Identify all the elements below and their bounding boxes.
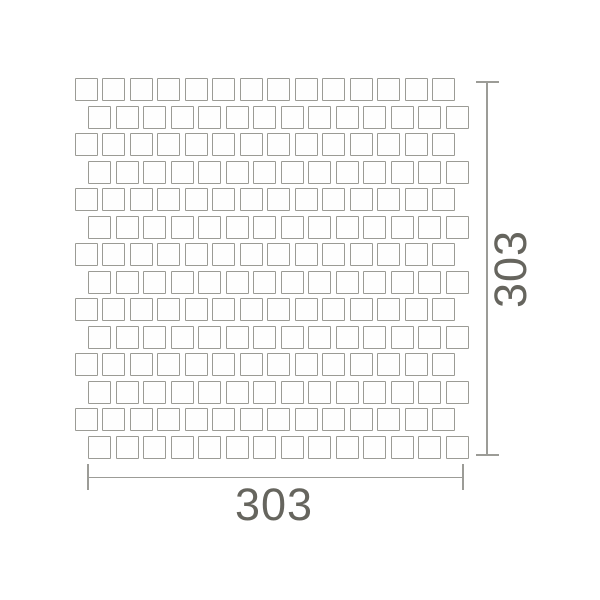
mosaic-tile	[198, 436, 221, 459]
mosaic-tile	[226, 326, 249, 349]
mosaic-tile	[102, 243, 125, 266]
mosaic-tile	[226, 271, 249, 294]
mosaic-tile	[226, 216, 249, 239]
mosaic-tile	[171, 216, 194, 239]
horizontal-dimension-left-tick	[87, 464, 89, 490]
mosaic-tile	[88, 436, 111, 459]
mosaic-tile	[295, 298, 318, 321]
mosaic-tile	[418, 326, 441, 349]
mosaic-tile	[75, 353, 98, 376]
drawing-canvas: 303 303	[0, 0, 600, 600]
mosaic-tile	[363, 436, 386, 459]
mosaic-tile	[350, 188, 373, 211]
mosaic-tile	[281, 381, 304, 404]
mosaic-tile	[267, 243, 290, 266]
mosaic-tile	[157, 188, 180, 211]
mosaic-tile	[212, 133, 235, 156]
mosaic-tile	[130, 298, 153, 321]
mosaic-tile	[377, 243, 400, 266]
mosaic-tile	[102, 78, 125, 101]
mosaic-tile	[253, 436, 276, 459]
mosaic-tile	[130, 133, 153, 156]
mosaic-tile	[116, 271, 139, 294]
mosaic-tile	[391, 161, 414, 184]
mosaic-tile	[391, 216, 414, 239]
mosaic-tile	[336, 161, 359, 184]
mosaic-tile	[212, 353, 235, 376]
mosaic-tile	[171, 326, 194, 349]
mosaic-tile	[185, 133, 208, 156]
mosaic-tile	[295, 78, 318, 101]
mosaic-tile	[116, 161, 139, 184]
mosaic-tile	[116, 381, 139, 404]
mosaic-tile	[350, 243, 373, 266]
mosaic-tile	[240, 353, 263, 376]
mosaic-tile	[295, 408, 318, 431]
mosaic-tile	[88, 326, 111, 349]
mosaic-tile	[295, 188, 318, 211]
mosaic-tile	[281, 216, 304, 239]
mosaic-tile	[171, 161, 194, 184]
mosaic-tile	[226, 161, 249, 184]
mosaic-tile	[198, 106, 221, 129]
mosaic-tile	[281, 326, 304, 349]
mosaic-tile	[405, 408, 428, 431]
mosaic-tile	[322, 353, 345, 376]
mosaic-tile	[226, 106, 249, 129]
mosaic-tile	[446, 161, 469, 184]
mosaic-tile	[253, 381, 276, 404]
mosaic-tile	[308, 161, 331, 184]
mosaic-tile	[226, 381, 249, 404]
mosaic-tile	[377, 353, 400, 376]
mosaic-tile	[212, 78, 235, 101]
mosaic-tile	[240, 133, 263, 156]
mosaic-tile	[157, 408, 180, 431]
mosaic-tile	[171, 106, 194, 129]
mosaic-tile	[391, 106, 414, 129]
mosaic-tile	[308, 381, 331, 404]
mosaic-tile	[350, 78, 373, 101]
mosaic-tile	[350, 353, 373, 376]
mosaic-tile	[391, 326, 414, 349]
mosaic-tile	[88, 216, 111, 239]
mosaic-tile	[143, 161, 166, 184]
mosaic-tile	[363, 271, 386, 294]
mosaic-tile	[418, 106, 441, 129]
mosaic-tile	[336, 216, 359, 239]
mosaic-tile	[322, 188, 345, 211]
mosaic-tile	[75, 78, 98, 101]
mosaic-tile	[157, 133, 180, 156]
mosaic-tile	[336, 436, 359, 459]
mosaic-tile	[157, 298, 180, 321]
mosaic-tile	[295, 353, 318, 376]
mosaic-tile	[281, 161, 304, 184]
mosaic-tile	[198, 216, 221, 239]
mosaic-tile	[391, 271, 414, 294]
mosaic-tile	[322, 243, 345, 266]
mosaic-tile	[185, 78, 208, 101]
horizontal-dimension-right-tick	[462, 464, 464, 490]
mosaic-tile	[130, 408, 153, 431]
mosaic-tile	[405, 78, 428, 101]
horizontal-dimension-line	[88, 477, 464, 479]
mosaic-tile	[363, 161, 386, 184]
mosaic-tile	[432, 78, 455, 101]
mosaic-tile	[405, 298, 428, 321]
mosaic-tile	[116, 326, 139, 349]
mosaic-tile	[446, 326, 469, 349]
mosaic-tile	[405, 188, 428, 211]
mosaic-tile	[240, 243, 263, 266]
mosaic-tile	[391, 381, 414, 404]
mosaic-tile	[267, 78, 290, 101]
mosaic-tile	[185, 243, 208, 266]
mosaic-tile	[432, 298, 455, 321]
mosaic-tile	[253, 161, 276, 184]
mosaic-tile	[75, 188, 98, 211]
mosaic-tile	[267, 353, 290, 376]
mosaic-tile	[240, 78, 263, 101]
mosaic-tile	[363, 381, 386, 404]
mosaic-tile	[308, 436, 331, 459]
mosaic-tile	[308, 106, 331, 129]
mosaic-tile	[446, 271, 469, 294]
mosaic-tile	[88, 271, 111, 294]
mosaic-tile	[116, 106, 139, 129]
mosaic-tile	[198, 381, 221, 404]
mosaic-tile	[143, 271, 166, 294]
mosaic-tile	[267, 133, 290, 156]
mosaic-tile	[212, 188, 235, 211]
mosaic-tile	[102, 133, 125, 156]
mosaic-tile	[446, 436, 469, 459]
mosaic-tile	[130, 78, 153, 101]
mosaic-tile	[185, 188, 208, 211]
mosaic-tile	[405, 353, 428, 376]
mosaic-tile	[143, 106, 166, 129]
mosaic-tile	[363, 216, 386, 239]
mosaic-tile	[377, 133, 400, 156]
mosaic-tile	[336, 326, 359, 349]
mosaic-tile	[405, 243, 428, 266]
mosaic-tile	[322, 78, 345, 101]
mosaic-tile	[88, 106, 111, 129]
mosaic-tile	[253, 326, 276, 349]
mosaic-tile	[240, 188, 263, 211]
vertical-dimension-top-tick	[476, 81, 499, 83]
mosaic-tile	[157, 78, 180, 101]
mosaic-tile	[418, 381, 441, 404]
mosaic-tile	[350, 408, 373, 431]
mosaic-tile	[75, 408, 98, 431]
mosaic-tile	[198, 271, 221, 294]
mosaic-tile	[102, 188, 125, 211]
mosaic-tile	[336, 381, 359, 404]
mosaic-tile	[418, 161, 441, 184]
mosaic-tile	[130, 188, 153, 211]
mosaic-tile	[171, 381, 194, 404]
mosaic-tile	[281, 271, 304, 294]
mosaic-tile	[350, 298, 373, 321]
mosaic-tile	[116, 216, 139, 239]
mosaic-tile	[308, 216, 331, 239]
mosaic-tile	[267, 298, 290, 321]
mosaic-tile	[446, 216, 469, 239]
mosaic-tile	[171, 271, 194, 294]
mosaic-tile	[198, 161, 221, 184]
mosaic-tile	[75, 243, 98, 266]
mosaic-tile	[432, 408, 455, 431]
mosaic-tile	[322, 408, 345, 431]
mosaic-tile	[432, 243, 455, 266]
mosaic-tile	[446, 381, 469, 404]
mosaic-tile	[130, 243, 153, 266]
mosaic-tile	[143, 216, 166, 239]
mosaic-tile	[418, 216, 441, 239]
mosaic-tile	[185, 408, 208, 431]
mosaic-tile	[391, 436, 414, 459]
mosaic-tile	[418, 271, 441, 294]
mosaic-tile	[185, 353, 208, 376]
mosaic-tile	[157, 353, 180, 376]
mosaic-tile	[363, 106, 386, 129]
mosaic-tile	[88, 161, 111, 184]
mosaic-tile	[308, 326, 331, 349]
mosaic-tile	[267, 408, 290, 431]
mosaic-tile	[143, 326, 166, 349]
mosaic-tile	[363, 326, 386, 349]
mosaic-tile	[377, 188, 400, 211]
mosaic-tile	[308, 271, 331, 294]
mosaic-tile	[198, 326, 221, 349]
mosaic-tile	[432, 353, 455, 376]
mosaic-tile	[377, 408, 400, 431]
height-dimension-label: 303	[488, 209, 534, 329]
mosaic-tile	[350, 133, 373, 156]
mosaic-tile	[102, 353, 125, 376]
mosaic-tile	[432, 133, 455, 156]
mosaic-tile	[295, 243, 318, 266]
mosaic-tile	[102, 298, 125, 321]
mosaic-tile	[405, 133, 428, 156]
mosaic-tile	[130, 353, 153, 376]
mosaic-tile	[446, 106, 469, 129]
mosaic-tile	[75, 298, 98, 321]
mosaic-tile	[212, 243, 235, 266]
mosaic-tile	[295, 133, 318, 156]
mosaic-tile	[75, 133, 98, 156]
mosaic-tile	[253, 271, 276, 294]
mosaic-tile	[116, 436, 139, 459]
mosaic-tile	[322, 133, 345, 156]
width-dimension-label: 303	[214, 482, 334, 527]
mosaic-tile	[212, 408, 235, 431]
mosaic-tile	[143, 436, 166, 459]
mosaic-tile	[88, 381, 111, 404]
mosaic-tile	[212, 298, 235, 321]
mosaic-tile	[157, 243, 180, 266]
mosaic-tile	[102, 408, 125, 431]
mosaic-tile	[377, 78, 400, 101]
mosaic-tile	[281, 106, 304, 129]
mosaic-tile	[336, 106, 359, 129]
mosaic-tile	[253, 216, 276, 239]
mosaic-tile	[226, 436, 249, 459]
vertical-dimension-bottom-tick	[476, 454, 499, 456]
mosaic-tile	[322, 298, 345, 321]
mosaic-tile	[267, 188, 290, 211]
mosaic-tile	[432, 188, 455, 211]
mosaic-tile	[171, 436, 194, 459]
mosaic-tile	[240, 408, 263, 431]
mosaic-tile	[240, 298, 263, 321]
mosaic-tile	[418, 436, 441, 459]
mosaic-tile	[253, 106, 276, 129]
mosaic-tile	[185, 298, 208, 321]
mosaic-tile	[281, 436, 304, 459]
mosaic-tile	[336, 271, 359, 294]
mosaic-tile	[377, 298, 400, 321]
mosaic-tile	[143, 381, 166, 404]
